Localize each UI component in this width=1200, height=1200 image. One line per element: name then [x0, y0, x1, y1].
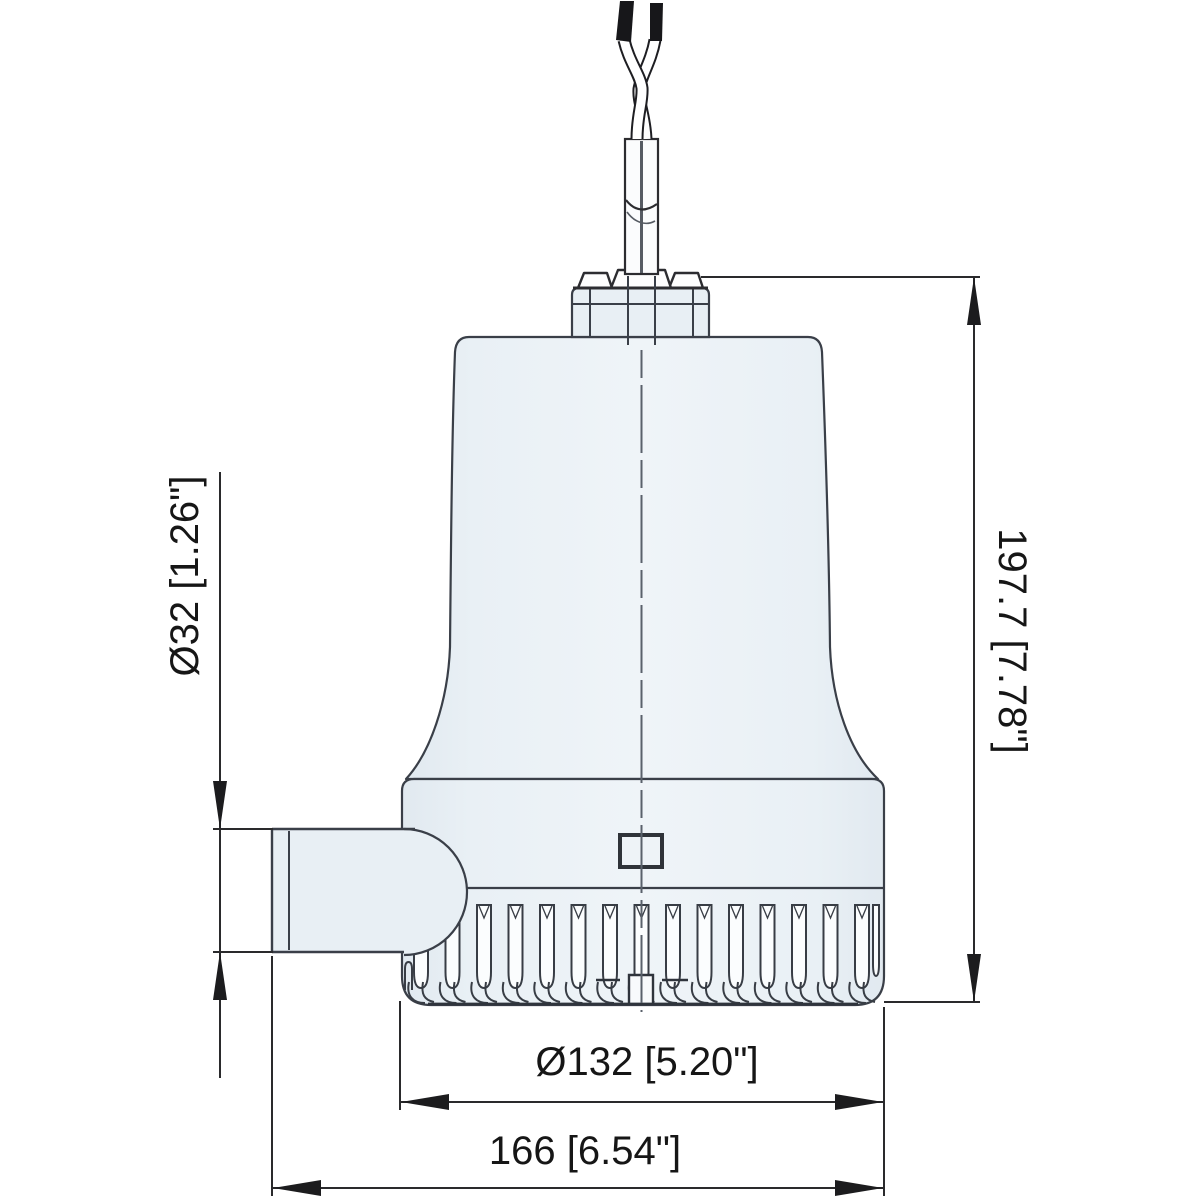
- svg-text:Ø32 [1.26"]: Ø32 [1.26"]: [163, 476, 207, 677]
- svg-text:Ø132 [5.20"]: Ø132 [5.20"]: [535, 1040, 758, 1084]
- svg-text:197.7 [7.78"]: 197.7 [7.78"]: [990, 528, 1034, 754]
- svg-text:166 [6.54"]: 166 [6.54"]: [489, 1129, 681, 1173]
